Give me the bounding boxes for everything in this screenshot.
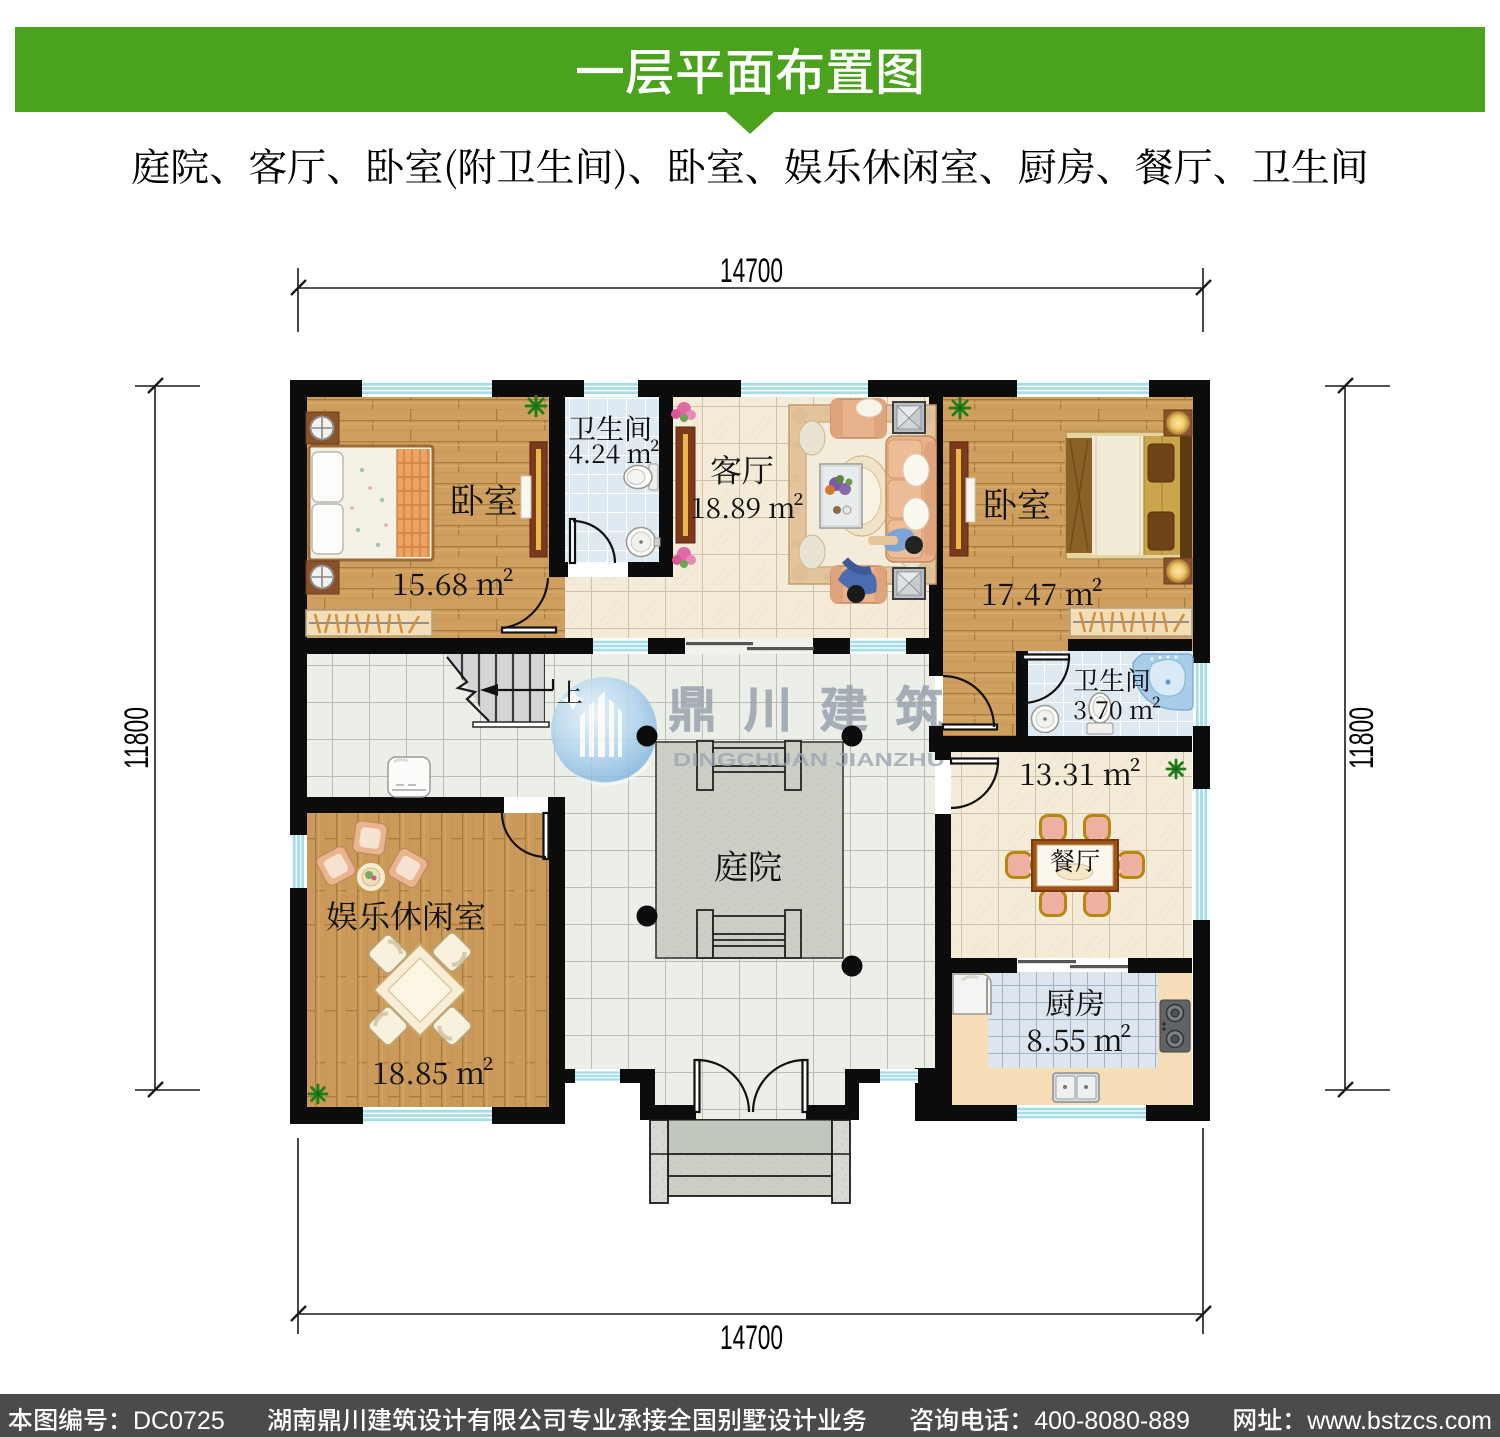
svg-text:DINGCHUAN JIANZHU: DINGCHUAN JIANZHU (673, 750, 945, 770)
svg-text:17.47 m²: 17.47 m² (981, 570, 1103, 614)
svg-text:上: 上 (557, 673, 583, 710)
svg-text:11800: 11800 (118, 707, 156, 769)
svg-text:8.55 m²: 8.55 m² (1026, 1016, 1131, 1060)
svg-text:18.89 m²: 18.89 m² (690, 487, 804, 527)
svg-text:14700: 14700 (720, 252, 783, 290)
svg-text:14700: 14700 (720, 1319, 783, 1357)
svg-text:庭院: 庭院 (714, 840, 782, 889)
svg-text:11800: 11800 (1343, 707, 1381, 769)
svg-text:餐厅: 餐厅 (1050, 842, 1100, 878)
svg-text:3.70 m²: 3.70 m² (1073, 691, 1161, 727)
svg-text:娱乐休闲室: 娱乐休闲室 (326, 892, 486, 938)
svg-text:卧室: 卧室 (983, 478, 1051, 527)
svg-text:13.31 m²: 13.31 m² (1019, 750, 1141, 794)
svg-text:15.68 m²: 15.68 m² (392, 560, 514, 604)
svg-text:18.85 m²: 18.85 m² (372, 1049, 494, 1093)
svg-text:卧室: 卧室 (450, 474, 518, 523)
svg-text:客厅: 客厅 (710, 446, 774, 492)
svg-text:4.24 m²: 4.24 m² (568, 434, 659, 471)
